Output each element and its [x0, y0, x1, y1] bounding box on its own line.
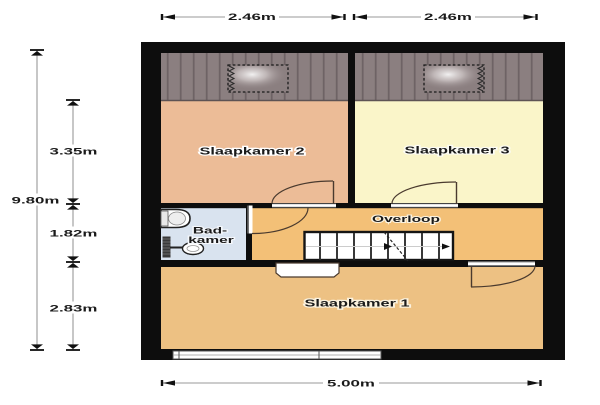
svg-text:Slaapkamer 1: Slaapkamer 1 — [304, 298, 410, 309]
svg-text:Overloop: Overloop — [372, 213, 440, 224]
svg-text:2.46m: 2.46m — [228, 11, 276, 21]
svg-text:9.80m: 9.80m — [12, 195, 60, 205]
svg-text:Slaapkamer 2: Slaapkamer 2 — [199, 146, 304, 157]
svg-text:5.00m: 5.00m — [327, 378, 375, 388]
svg-text:kamer: kamer — [188, 234, 234, 245]
svg-text:2.83m: 2.83m — [50, 303, 98, 313]
svg-text:3.35m: 3.35m — [50, 146, 98, 156]
svg-text:2.46m: 2.46m — [424, 11, 472, 21]
svg-text:Slaapkamer 3: Slaapkamer 3 — [404, 145, 510, 156]
svg-text:1.82m: 1.82m — [50, 228, 98, 238]
